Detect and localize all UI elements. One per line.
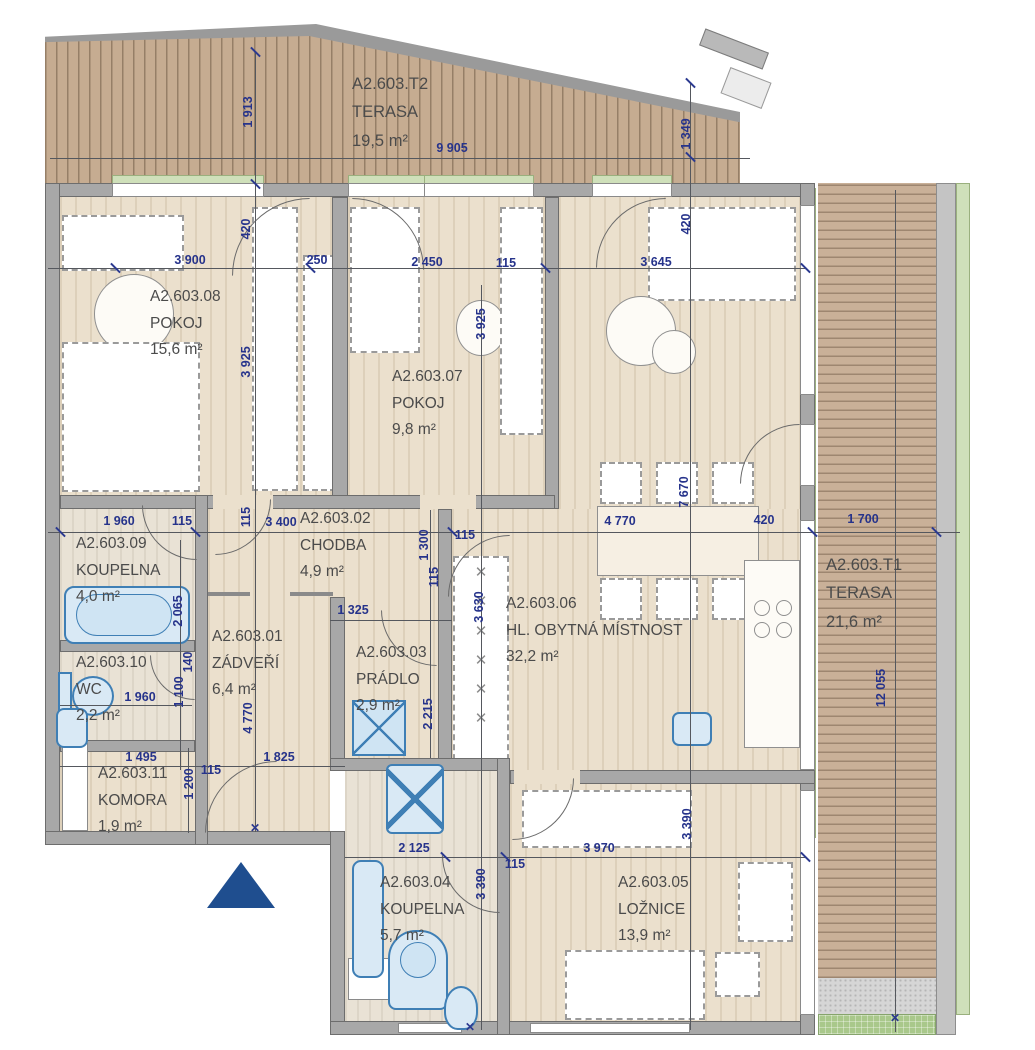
window: [800, 790, 815, 1015]
chair: [600, 462, 642, 504]
room-name: ZÁDVEŘÍ: [212, 651, 283, 678]
room-name: KOUPELNA: [76, 558, 160, 585]
dim-label: 4 770: [604, 514, 635, 528]
room-name: TERASA: [826, 579, 902, 607]
room-id: A2.603.02: [300, 506, 371, 533]
room-label-chodba: A2.603.02 CHODBA 4,9 m²: [300, 506, 371, 586]
nightstand: [715, 952, 760, 997]
shower-head-symbol: [386, 764, 444, 834]
room-id: A2.603.04: [380, 870, 464, 897]
room-area: 6,4 m²: [212, 677, 283, 704]
room-label-pokoj-08: A2.603.08 POKOJ 15,6 m²: [150, 284, 221, 364]
kitchen-sink: [672, 712, 712, 746]
window: [800, 205, 815, 395]
terrace-right-wall: [936, 183, 956, 1035]
room-label-terasa-t2: A2.603.T2 TERASA 19,5 m²: [352, 70, 428, 155]
room-area: 13,9 m²: [618, 923, 689, 950]
wall-08-07: [332, 197, 348, 497]
bed-loznice: [565, 950, 705, 1020]
dim-label: 2 065: [171, 595, 185, 626]
room-id: A2.603.09: [76, 531, 160, 558]
room-label-pradlo: A2.603.03 PRÁDLO 2,9 m²: [356, 640, 427, 720]
dim-label: 420: [239, 219, 253, 240]
room-area: 21,6 m²: [826, 608, 902, 636]
room-area: 4,9 m²: [300, 559, 371, 586]
wall-pradlo-right: [438, 509, 452, 771]
window: [530, 1023, 690, 1033]
wall-07-06: [545, 197, 559, 509]
room-name: KOUPELNA: [380, 897, 464, 924]
dim-label: 1 825: [263, 750, 294, 764]
dim-label: 420: [754, 513, 775, 527]
bench-loznice: [738, 862, 793, 942]
wall-outer-left-ext: [330, 831, 345, 1035]
dim-label: 2 450: [411, 255, 442, 269]
dim-label: 1 200: [182, 768, 196, 799]
dim-line: [330, 620, 452, 621]
entrance-arrow-icon: [207, 862, 275, 908]
room-area: 19,5 m²: [352, 127, 428, 155]
floor-plan-canvas: ✕✕✕✕✕✕: [0, 0, 1035, 1050]
room-name: HL. OBYTNÁ MÍSTNOST: [506, 618, 683, 645]
room-id: A2.603.08: [150, 284, 221, 311]
wall-chodba-zadveri-b: [290, 592, 333, 596]
dim-label: 3 900: [174, 253, 205, 267]
dim-label: 2 125: [398, 841, 429, 855]
dim-label: 140: [181, 652, 195, 673]
dim-line: [255, 52, 256, 832]
room-area: 32,2 m²: [506, 644, 683, 671]
dim-label: 4 770: [241, 702, 255, 733]
room-label-wc: A2.603.10 WC 2,2 m²: [76, 650, 147, 730]
room-name: POKOJ: [150, 311, 221, 338]
dim-label: 115: [201, 763, 221, 777]
desk: [62, 215, 184, 271]
dim-line: [345, 857, 805, 858]
dim-label: 420: [679, 214, 693, 235]
wall-chodba-zadveri-a: [208, 592, 250, 596]
bed-room-08: [62, 342, 200, 492]
room-area: 2,9 m²: [356, 693, 427, 720]
room-label-komora: A2.603.11 KOMORA 1,9 m²: [98, 761, 168, 841]
dim-label: 1 700: [847, 512, 878, 526]
terrace-right-planter-right: [956, 183, 970, 1015]
dim-label: 3 400: [265, 515, 296, 529]
dim-label: 250: [307, 253, 328, 267]
dim-label: 115: [496, 256, 516, 270]
room-name: LOŽNICE: [618, 897, 689, 924]
dim-label: 9 905: [436, 141, 467, 155]
room-area: 15,6 m²: [150, 337, 221, 364]
room-label-terasa-t1: A2.603.T1 TERASA 21,6 m²: [826, 551, 902, 636]
window: [112, 183, 264, 197]
room-label-living: A2.603.06 HL. OBYTNÁ MÍSTNOST 32,2 m²: [506, 591, 683, 671]
room-area: 9,8 m²: [392, 417, 463, 444]
room-name: TERASA: [352, 98, 428, 126]
room-id: A2.603.03: [356, 640, 427, 667]
wall-zadveri-pradlo: [330, 597, 345, 771]
room-label-koupelna-09: A2.603.09 KOUPELNA 4,0 m²: [76, 531, 160, 611]
room-name: PRÁDLO: [356, 667, 427, 694]
dim-label: 1 960: [103, 514, 134, 528]
room-id: A2.603.10: [76, 650, 147, 677]
sofa: [648, 207, 796, 301]
dim-line: [481, 285, 482, 1030]
dim-label: 3 390: [474, 868, 488, 899]
room-id: A2.603.07: [392, 364, 463, 391]
dim-label: 3 630: [472, 591, 486, 622]
dim-label: 1 325: [337, 603, 368, 617]
room-label-loznice: A2.603.05 LOŽNICE 13,9 m²: [618, 870, 689, 950]
dim-label: 115: [427, 567, 441, 587]
niche-komora: [62, 743, 88, 831]
window: [348, 183, 436, 197]
survey-cross-icon: ✕: [250, 821, 260, 835]
roof-cut: [699, 28, 769, 69]
room-area: 2,2 m²: [76, 703, 147, 730]
dim-line: [50, 158, 750, 159]
room-id: A2.603.T2: [352, 70, 428, 98]
room-id: A2.603.11: [98, 761, 168, 788]
cooktop-burner: [776, 622, 792, 638]
dim-label: 115: [239, 507, 253, 527]
room-id: A2.603.01: [212, 624, 283, 651]
room-label-pokoj-07: A2.603.07 POKOJ 9,8 m²: [392, 364, 463, 444]
room-name: KOMORA: [98, 788, 168, 815]
dim-label: 1 913: [241, 96, 255, 127]
window: [800, 520, 815, 770]
dim-line: [48, 532, 960, 533]
wardrobe-room-07: [500, 207, 543, 435]
dim-label: 3 645: [640, 255, 671, 269]
dim-label: 115: [455, 528, 475, 542]
dim-label: 7 670: [677, 476, 691, 507]
dim-label: 115: [172, 514, 192, 528]
room-area: 4,0 m²: [76, 584, 160, 611]
room-name: WC: [76, 677, 147, 704]
survey-cross-icon: ✕: [890, 1011, 900, 1025]
dim-label: 3 390: [680, 808, 694, 839]
cooktop-burner: [776, 600, 792, 616]
cooktop-burner: [754, 600, 770, 616]
roof-cut-2: [720, 67, 771, 109]
dim-label: 3 925: [239, 346, 253, 377]
room-area: 1,9 m²: [98, 814, 168, 841]
window: [592, 183, 672, 197]
dim-label: 1 300: [417, 529, 431, 560]
room-label-zadveri: A2.603.01 ZÁDVEŘÍ 6,4 m²: [212, 624, 283, 704]
dim-label: 1 349: [679, 118, 693, 149]
kitchen-counter: [744, 560, 800, 748]
room-area: 5,7 m²: [380, 923, 464, 950]
room-id: A2.603.T1: [826, 551, 902, 579]
room-name: POKOJ: [392, 391, 463, 418]
room-label-koupelna-04: A2.603.04 KOUPELNA 5,7 m²: [380, 870, 464, 950]
cooktop-burner: [754, 622, 770, 638]
dim-label: 3 925: [474, 308, 488, 339]
dim-label: 115: [505, 857, 525, 871]
door-gap: [420, 495, 476, 509]
room-name: CHODBA: [300, 533, 371, 560]
gravel-strip: [818, 978, 936, 1014]
room-id: A2.603.05: [618, 870, 689, 897]
window: [424, 183, 534, 197]
survey-cross-icon: ✕: [465, 1020, 475, 1034]
grass-patch: [818, 1014, 936, 1035]
dim-label: 1 100: [172, 676, 186, 707]
dim-label: 12 055: [874, 669, 888, 707]
room-id: A2.603.06: [506, 591, 683, 618]
dim-label: 3 970: [583, 841, 614, 855]
terrace-door: [800, 424, 815, 486]
